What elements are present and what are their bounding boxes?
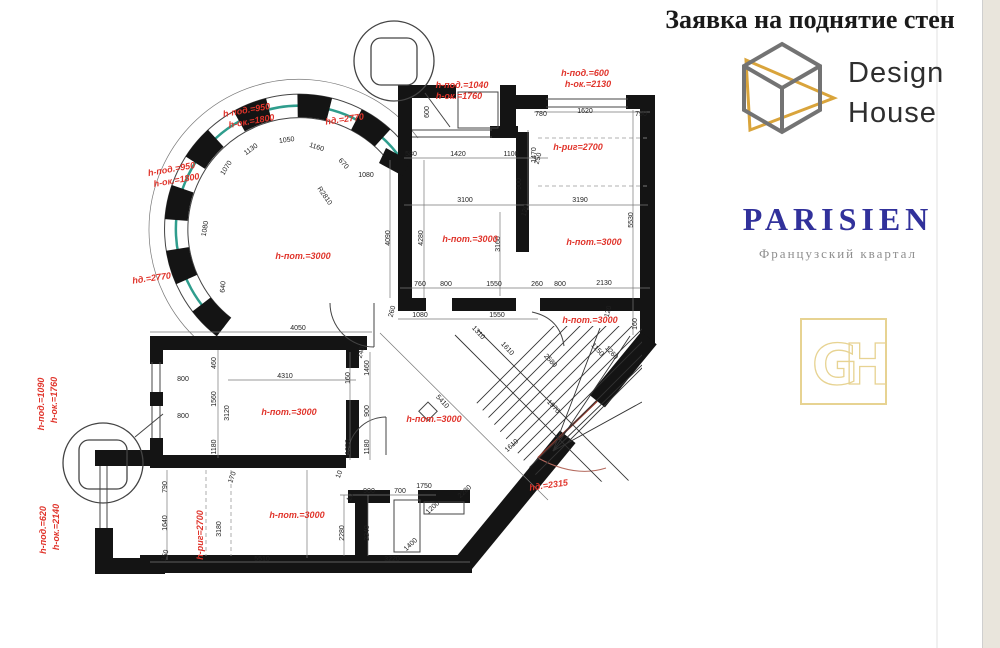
annotation-label: h-пот.=3000 [275, 251, 330, 261]
dimension-label: 800 [177, 413, 189, 420]
parisien-logo: PARISIEN Французский квартал [743, 201, 934, 261]
dimension-label: 1080 [201, 220, 211, 237]
annotation-label: h-пот.=3000 [442, 234, 497, 244]
design-house-logo: Design House [744, 44, 944, 132]
dimension-label: 1620 [577, 108, 593, 115]
dimension-label: 900 [363, 488, 375, 495]
annotation-label: h-пот.=3000 [269, 510, 324, 520]
parisien-subtitle: Французский квартал [759, 246, 917, 261]
dimension-label: 670 [337, 157, 350, 170]
page-title: Заявка на поднятие стен [665, 5, 954, 34]
dimension-label: 4280 [418, 230, 425, 246]
dimension-label: 3220 [384, 556, 400, 563]
dimension-label: 800 [177, 376, 189, 383]
dimension-label: 1310 [470, 325, 486, 341]
design-house-line1: Design [848, 57, 944, 89]
design-house-line2: House [848, 97, 937, 129]
dimension-label: 790 [635, 111, 647, 118]
dimension-label: 3120 [224, 405, 231, 421]
dimension-label: 800 [440, 281, 452, 288]
gh-monogram: GH [801, 319, 886, 404]
dimension-label: 800 [554, 281, 566, 288]
cube-icon [744, 44, 834, 132]
dimension-label: 1550 [486, 281, 502, 288]
dimension-label: 1420 [450, 151, 466, 158]
dimension-label: 3190 [572, 197, 588, 204]
annotation-label: h-под.=1040 [436, 80, 489, 90]
dimension-label: 10 [335, 470, 344, 480]
walls [95, 85, 655, 574]
dimension-label: 4050 [290, 325, 306, 332]
dimension-label: 3100 [457, 197, 473, 204]
dimension-label: 3180 [216, 521, 223, 537]
dimension-label: 640 [220, 281, 228, 293]
dimension-label: 600 [424, 106, 431, 118]
dimension-label: 1560 [211, 391, 218, 407]
dimension-label: 1130 [243, 143, 259, 157]
annotation-label: h-риг=2700 [195, 510, 205, 560]
dimension-label: 1550 [489, 312, 505, 319]
dimension-label: 5510 [254, 556, 270, 563]
floor-plan: 7801620790147055303190120213060058014201… [36, 21, 720, 574]
door-arcs [330, 303, 564, 455]
drawing-canvas: 7801620790147055303190120213060058014201… [0, 0, 1000, 648]
dimension-label: 260 [388, 305, 398, 318]
dimension-label: 5530 [628, 212, 635, 228]
dimension-label: 790 [162, 481, 169, 493]
dimension-label: 700 [394, 488, 406, 495]
curved-bay-wall [149, 79, 418, 342]
dimension-label: 170 [227, 471, 238, 484]
annotation-label: h-пот.=3000 [261, 407, 316, 417]
dimension-label: 2130 [596, 280, 612, 287]
dimension-label: 2240 [364, 525, 371, 541]
annotation-label: h-ок.=1760 [436, 91, 482, 101]
annotation-label: hд.=2770 [132, 270, 172, 285]
staircase [400, 290, 720, 510]
dimension-label: 1070 [220, 160, 234, 177]
dimension-label: 1180 [364, 439, 371, 454]
annotation-label: h-пот.=3000 [406, 414, 461, 424]
page-edge-strip [983, 0, 1000, 648]
annotation-label: h-ок.=2140 [51, 504, 61, 550]
dimension-label: 760 [414, 281, 426, 288]
dimension-label: R2810 [315, 186, 333, 207]
monogram-letters: GH [812, 333, 886, 398]
parisien-name: PARISIEN [743, 201, 934, 237]
dimension-label: 4090 [385, 230, 392, 246]
dimension-label: 4310 [277, 373, 293, 380]
annotation-label: h-пот.=3000 [566, 237, 621, 247]
annotation-label: h-риг=2700 [553, 142, 603, 152]
dimension-label: 1640 [162, 515, 169, 531]
annotation-label: h-под.=600 [561, 68, 609, 78]
dimension-label: 5410 [434, 394, 450, 410]
dimension-label: 160 [345, 372, 352, 384]
dimension-label: 460 [211, 357, 218, 369]
dimension-label: 1050 [279, 136, 296, 145]
dimension-label: 1180 [211, 439, 218, 454]
dimension-label: 900 [364, 405, 371, 417]
dimension-label: 2280 [339, 525, 346, 541]
dimension-label: 900 [516, 178, 523, 190]
annotation-label: h-ок.=2130 [565, 79, 611, 89]
annotation-label: h-ок.=1760 [49, 377, 59, 423]
dimension-label: 1080 [412, 312, 428, 319]
annotation-label: h-пот.=3000 [562, 315, 617, 325]
dimension-label: 1750 [416, 483, 432, 490]
dimension-label: 1100 [503, 151, 518, 158]
dimension-label: 260 [531, 281, 543, 288]
dimension-label: 1610 [499, 341, 515, 357]
dimension-label: 1080 [358, 172, 374, 179]
dimension-label: 580 [405, 151, 417, 158]
dimension-label: 780 [535, 111, 547, 118]
dimension-label: 1460 [364, 360, 371, 376]
dimension-label: 1050 [345, 439, 352, 455]
dimension-label: 1400 [403, 537, 419, 553]
dimension-label: 1160 [308, 142, 325, 153]
dimension-label: 160 [632, 318, 639, 330]
annotation-label: h-под.=620 [38, 506, 48, 554]
floor-plan-page: 7801620790147055303190120213060058014201… [0, 0, 1000, 648]
annotation-label: h-под.=1090 [36, 378, 46, 431]
